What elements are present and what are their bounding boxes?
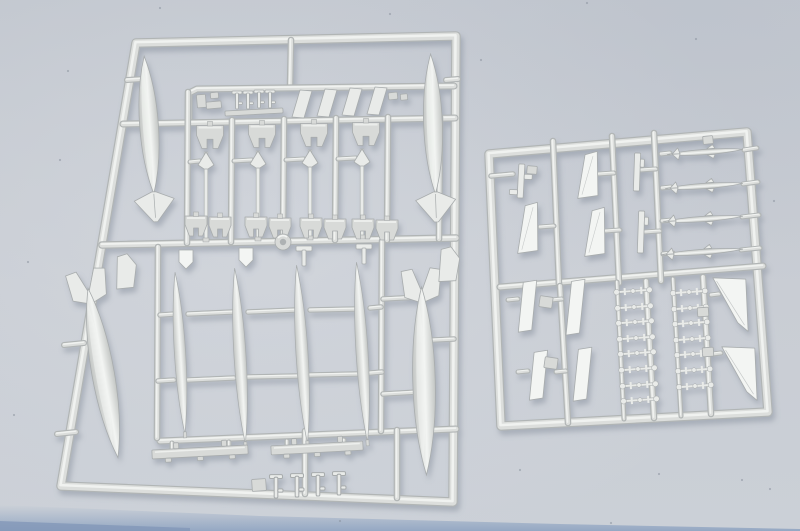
dust-speck [741,479,743,481]
dust-speck [27,261,29,263]
dust-speck [389,13,391,15]
dust-speck [13,414,15,416]
photo-model-kit-sprues [0,0,800,531]
dust-speck [519,469,521,471]
small-part [702,347,714,357]
sprue-photo-canvas [0,0,800,531]
small-part [539,296,553,309]
round-grommet [275,234,291,250]
small-part [697,307,709,317]
small-part [703,135,714,144]
dust-speck [59,159,61,161]
small-part [527,166,538,175]
dust-speck [159,7,161,9]
dust-speck [695,38,697,40]
small-part [388,92,398,100]
dust-speck [67,70,69,72]
pin-jig [252,479,267,492]
dust-speck [769,488,771,490]
dust-speck [773,200,775,202]
dust-speck [339,520,341,522]
dust-speck [586,2,588,4]
dust-speck [480,59,482,61]
dust-speck [658,473,660,475]
dust-speck [610,522,612,524]
small-part [544,357,558,370]
small-part [400,94,408,101]
